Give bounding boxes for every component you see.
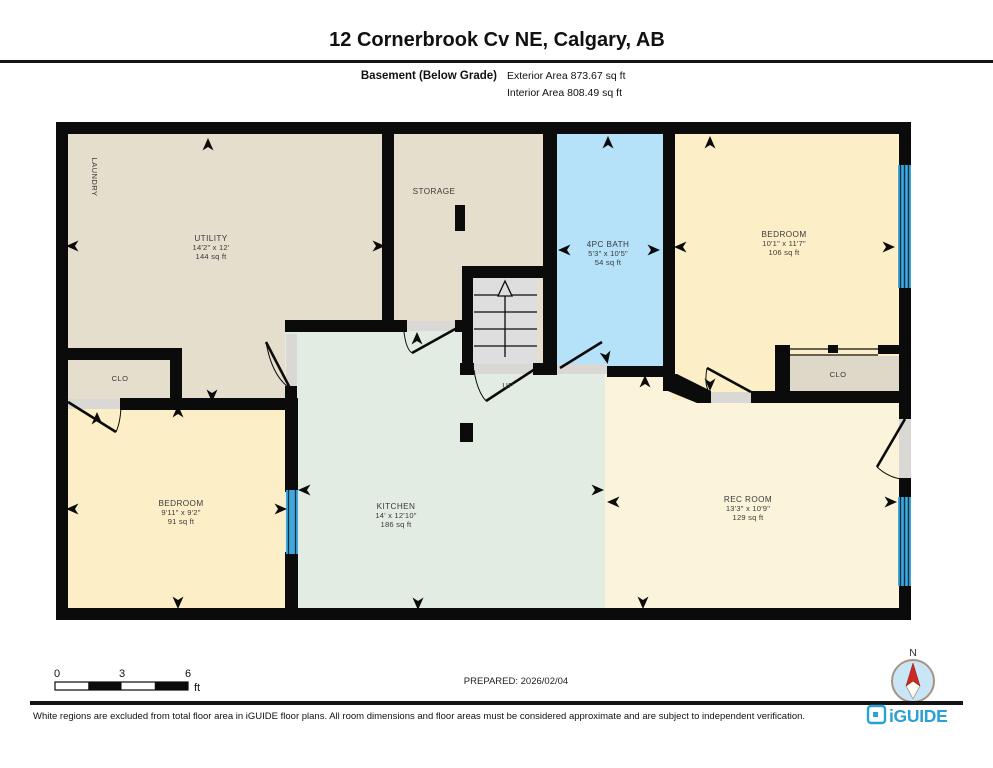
header-divider <box>0 60 993 63</box>
rec-room-window <box>898 497 911 586</box>
closet-left-label: CLO <box>112 374 129 383</box>
footer-divider <box>30 701 963 705</box>
bedroom-right-label: BEDROOM <box>761 230 806 239</box>
compass-icon: N <box>892 647 934 702</box>
stairs-up-label: UP <box>502 381 513 390</box>
compass-north-label: N <box>909 647 917 659</box>
footer: White regions are excluded from total fl… <box>30 701 963 726</box>
bedroom-left-dims: 9'11" x 9'2" <box>161 508 200 517</box>
bedroom-right-dims: 10'1" x 11'7" <box>762 239 806 248</box>
iguide-logo-dot <box>873 712 878 717</box>
prepared-date: PREPARED: 2026/02/04 <box>464 676 568 687</box>
footer-disclaimer: White regions are excluded from total fl… <box>33 711 805 722</box>
rec-room-label: REC ROOM <box>724 495 772 504</box>
rec-room-floor <box>605 372 908 616</box>
laundry-label: LAUNDRY <box>90 158 99 197</box>
scale-bar: 0 3 6 ft <box>54 668 200 694</box>
floor-label: Basement (Below Grade) <box>361 70 497 82</box>
support-column <box>460 423 473 442</box>
bath-dims: 5'3" x 10'5" <box>588 249 628 258</box>
header: 12 Cornerbrook Cv NE, Calgary, AB Baseme… <box>0 29 993 99</box>
scale-tick-3: 3 <box>119 668 125 680</box>
scale-tick-0: 0 <box>54 668 60 680</box>
page-title: 12 Cornerbrook Cv NE, Calgary, AB <box>329 29 665 51</box>
floorplan-page: 12 Cornerbrook Cv NE, Calgary, AB Baseme… <box>0 0 993 768</box>
bedroom-right-area: 106 sq ft <box>769 248 801 257</box>
rec-room-area: 129 sq ft <box>733 513 765 522</box>
kitchen-label: KITCHEN <box>377 502 416 511</box>
interior-area: Interior Area 808.49 sq ft <box>507 87 622 99</box>
scale-tick-6: 6 <box>185 668 191 680</box>
utility-label: UTILITY <box>194 234 227 243</box>
bedroom-left-window <box>286 490 298 554</box>
scale-unit: ft <box>194 682 200 694</box>
kitchen-area: 186 sq ft <box>381 520 413 529</box>
utility-area: 144 sq ft <box>196 252 228 261</box>
utility-dims: 14'2" x 12' <box>193 243 230 252</box>
bath-area: 54 sq ft <box>595 258 622 267</box>
rec-room-dims: 13'3" x 10'9" <box>726 504 770 513</box>
closet-right-label: CLO <box>830 370 847 379</box>
bedroom-left-label: BEDROOM <box>158 499 203 508</box>
bedroom-left-area: 91 sq ft <box>168 517 195 526</box>
iguide-brand-text: iGUIDE <box>889 706 948 726</box>
bedroom-right-window <box>898 165 911 288</box>
iguide-logo: iGUIDE <box>868 706 948 726</box>
exterior-area: Exterior Area 873.67 sq ft <box>507 70 626 82</box>
storage-label: STORAGE <box>413 187 456 196</box>
bath-label: 4PC BATH <box>587 240 630 249</box>
kitchen-dims: 14' x 12'10" <box>375 511 416 520</box>
